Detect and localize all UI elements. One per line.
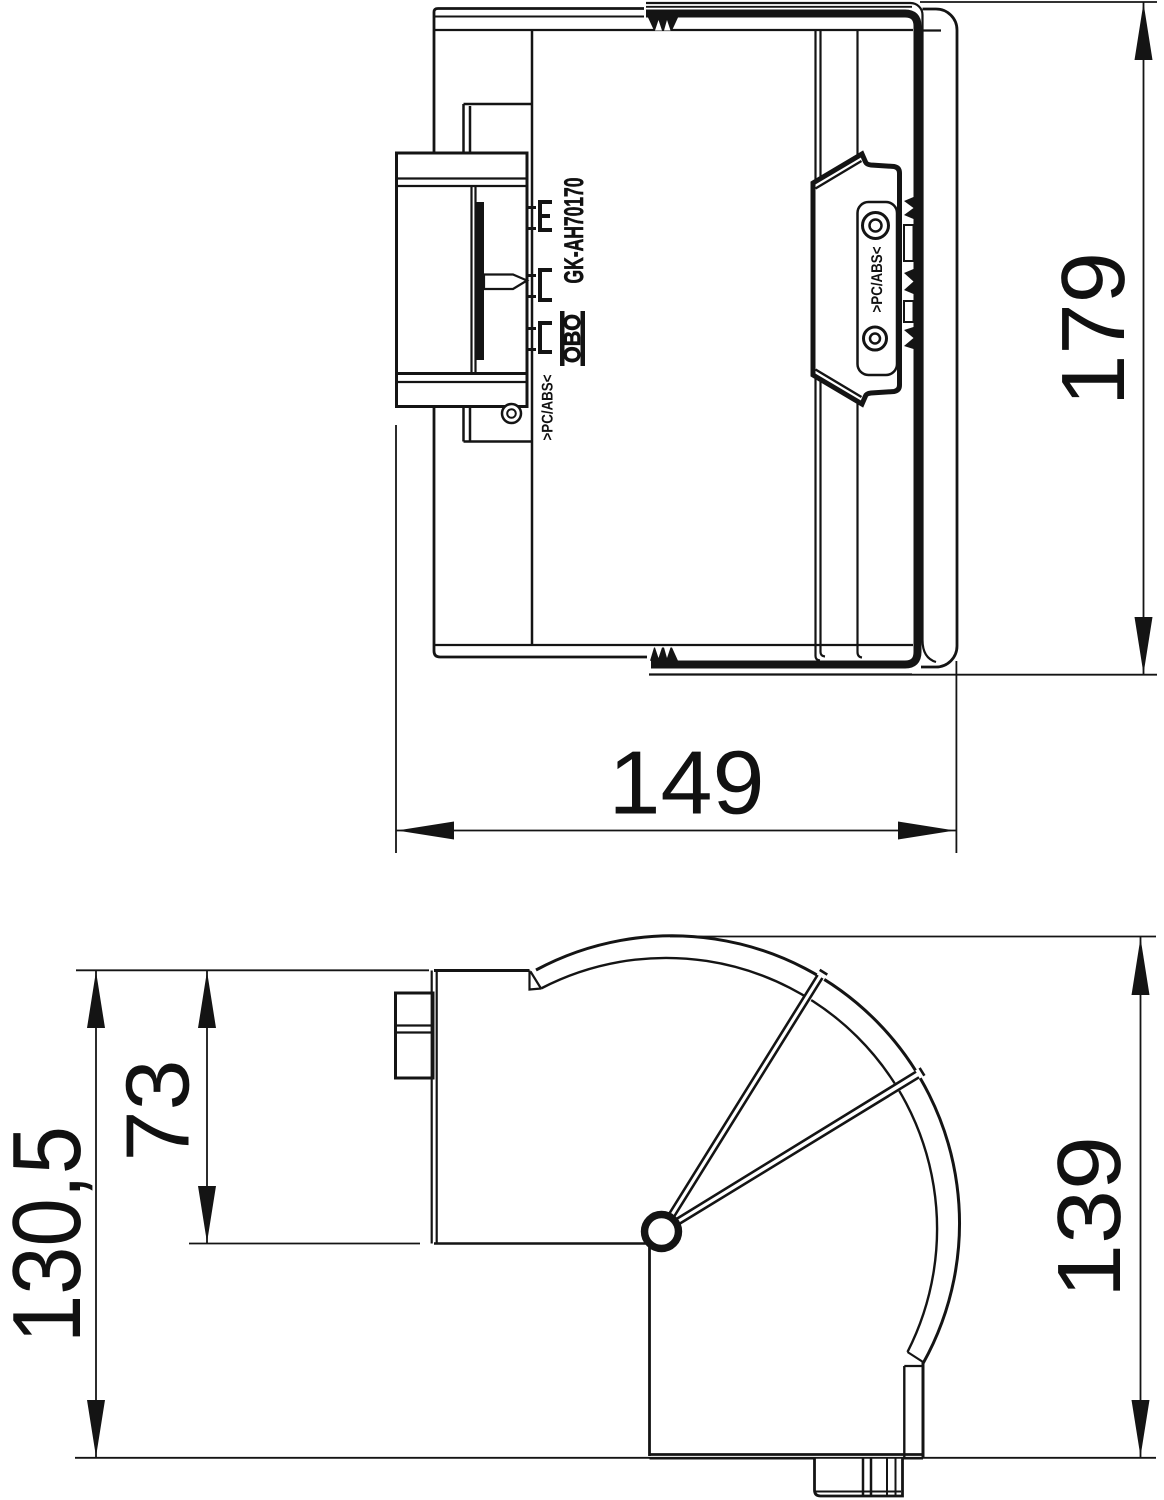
svg-text:139: 139	[1040, 1136, 1140, 1298]
svg-text:GK-AH70170: GK-AH70170	[559, 178, 589, 284]
svg-text:OBO: OBO	[559, 314, 585, 363]
svg-text:73: 73	[108, 1060, 208, 1162]
svg-text:130,5: 130,5	[0, 1126, 101, 1343]
svg-text:149: 149	[609, 734, 765, 834]
svg-text:>PC/ABS<: >PC/ABS<	[540, 375, 557, 441]
svg-text:179: 179	[1044, 252, 1144, 406]
svg-text:>PC/ABS<: >PC/ABS<	[869, 247, 886, 313]
